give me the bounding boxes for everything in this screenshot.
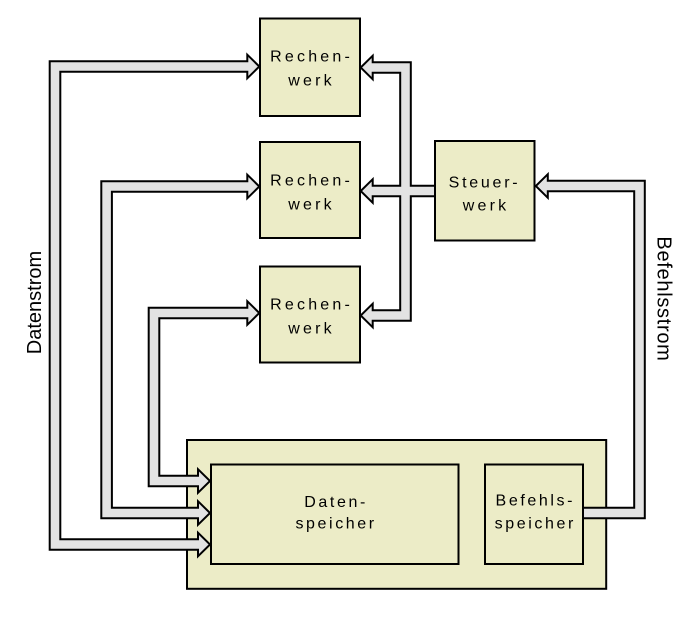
svg-text:Rechen-: Rechen-: [270, 48, 353, 65]
svg-text:Rechen-: Rechen-: [270, 297, 353, 314]
svg-text:werk: werk: [287, 197, 335, 214]
svg-text:speicher: speicher: [295, 516, 376, 533]
svg-text:werk: werk: [287, 73, 335, 90]
svg-text:Rechen-: Rechen-: [270, 173, 353, 190]
svg-text:speicher: speicher: [495, 515, 576, 532]
svg-text:Steuer-: Steuer-: [449, 174, 521, 191]
svg-text:werk: werk: [462, 198, 510, 215]
svg-text:Daten-: Daten-: [304, 494, 368, 511]
svg-text:Befehls-: Befehls-: [496, 493, 576, 510]
svg-text:Befehlsstrom: Befehlsstrom: [652, 236, 674, 361]
svg-text:Datenstrom: Datenstrom: [24, 251, 46, 354]
svg-text:werk: werk: [287, 321, 335, 338]
